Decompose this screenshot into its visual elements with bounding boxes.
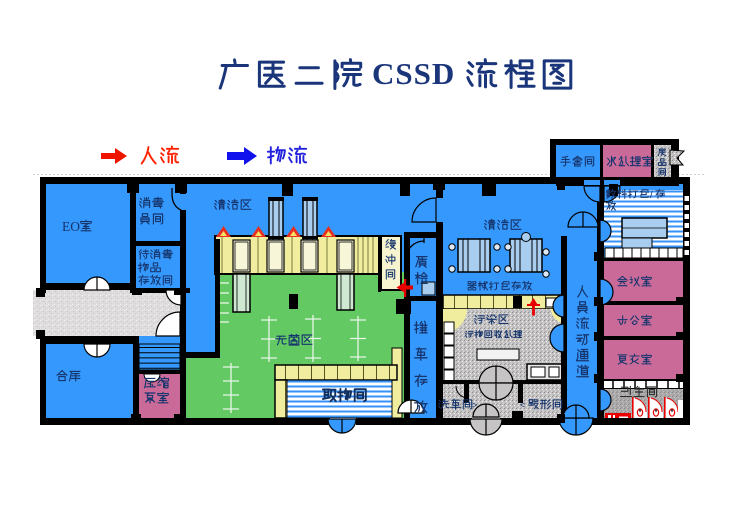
- svg-text:>: >: [472, 400, 477, 410]
- svg-text:<: <: [520, 400, 525, 410]
- svg-text:/: /: [499, 330, 502, 341]
- svg-text:CSSD: CSSD: [372, 56, 455, 91]
- svg-text:/: /: [650, 190, 653, 201]
- svg-text:EO: EO: [62, 219, 80, 234]
